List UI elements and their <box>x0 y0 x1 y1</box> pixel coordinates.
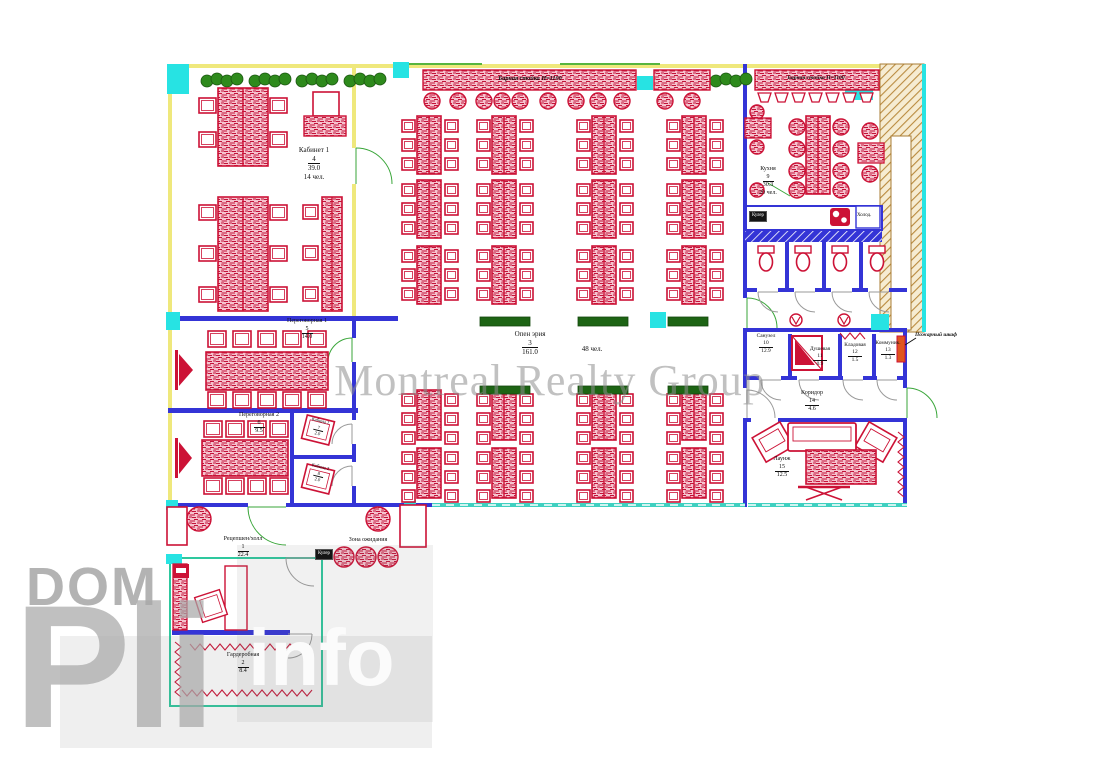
fridge-label: Холод. <box>857 213 871 218</box>
open-area-capacity: 48 чел. <box>572 344 612 353</box>
cooler-badge-kitchen: Кулер <box>749 211 767 222</box>
fire-cabinet-label: Пожарный шкаф <box>912 332 960 338</box>
plan-geometry <box>166 62 937 706</box>
room-label-shower: Душевая 110.9 <box>800 346 840 367</box>
floor-plan-canvas: Montreal Realty Group DOM Pli info Барна… <box>0 0 1102 768</box>
room-label-corridor: Коридор 144.6 <box>782 390 842 413</box>
room-label-office1: Кабинет 1 439.0 14 чел. <box>283 146 345 181</box>
room-label-meeting2: Переговорная 2 69.5 <box>222 412 296 435</box>
room-label-meeting1: Переговорная 1 514.0 <box>270 318 344 341</box>
room-label-bathroom: Санузел 1012.9 <box>746 333 786 354</box>
room-label-lounge: Лаунж 1512.5 <box>758 456 806 479</box>
bar-counter-label: Барная стойка Н=1100 <box>455 75 605 82</box>
room-label-kitchen: Кухня 930.3 20 чел. <box>744 166 792 196</box>
room-label-comms: Коммуник. 131.3 <box>868 340 908 361</box>
floor-plan-drawing <box>0 0 1102 768</box>
room-label-reception: Рецепшен/холл 122.4 <box>206 536 280 559</box>
bar-counter-label-2: Барная стойка Н=1100 <box>760 75 872 81</box>
room-label-open-area: Опен эрия 3161.0 <box>492 330 568 356</box>
room-label-waiting: Зона ожидания <box>328 537 408 544</box>
room-label-wardrobe: Гардеробная 28.4 <box>206 652 280 675</box>
cooler-badge-waiting: Кулер <box>315 549 333 560</box>
